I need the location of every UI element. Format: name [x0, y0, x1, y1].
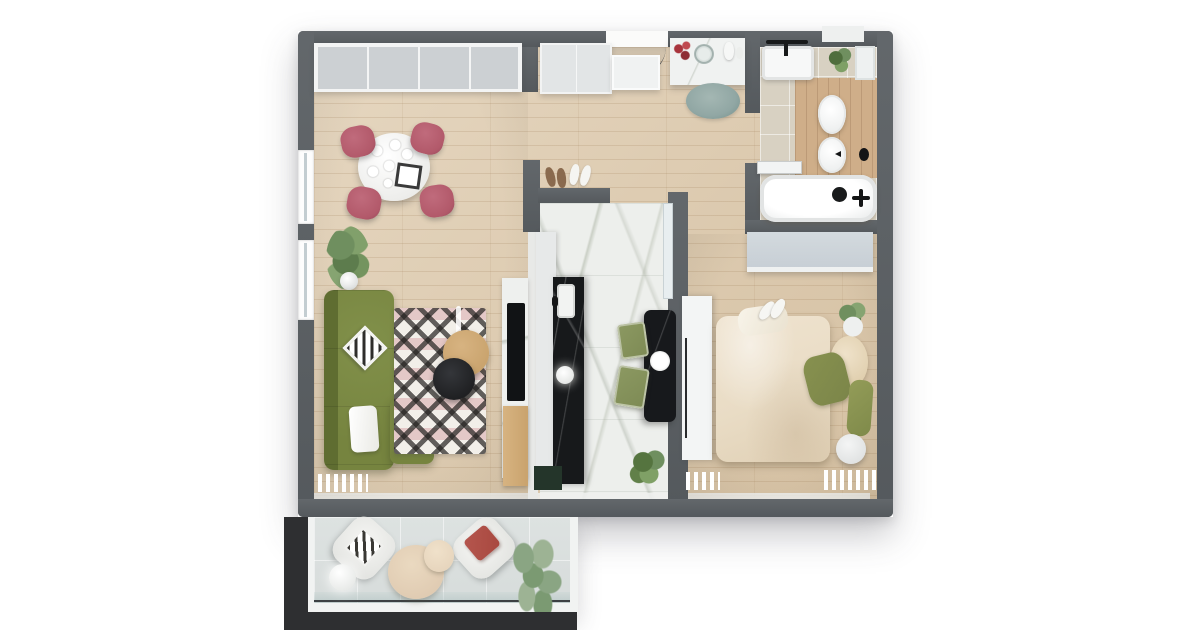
vanity-sink	[762, 46, 814, 80]
window	[298, 240, 314, 320]
bidet-spout	[835, 151, 841, 157]
kitchen-chair	[617, 321, 650, 360]
potted-plant	[826, 46, 854, 76]
floor-lamp	[340, 272, 358, 290]
floor-plan-canvas	[0, 0, 1200, 630]
wall-vent-cap	[822, 26, 864, 42]
sphere-lamp	[329, 564, 356, 591]
cabinet-divider	[576, 45, 577, 92]
rug-fringe	[824, 470, 876, 490]
slippers	[762, 298, 788, 322]
rug-fringe	[318, 474, 368, 492]
dining-table-tray	[394, 162, 422, 189]
lower-level-shadow	[284, 612, 577, 630]
wall-east	[877, 31, 893, 517]
wardrobe	[747, 232, 873, 272]
round-teal-rug	[686, 83, 740, 119]
wardrobe-edge	[747, 267, 873, 272]
lumbar-pillow	[846, 379, 874, 437]
pendant-light	[556, 366, 574, 384]
plate	[650, 351, 670, 371]
wall-south	[298, 499, 893, 517]
vase	[736, 47, 743, 59]
window-glass	[304, 153, 307, 221]
closet-doors	[318, 47, 518, 89]
wall-column	[520, 47, 538, 92]
kitchen-chair	[613, 365, 650, 409]
wall-kitchen-north	[538, 188, 610, 203]
bathtub-drain	[832, 187, 847, 202]
balcony-table	[424, 540, 454, 572]
green-base-cabinet	[534, 466, 562, 490]
window	[298, 150, 314, 224]
kitchen-sink	[557, 284, 575, 318]
potted-plant	[835, 300, 871, 338]
tv	[507, 303, 525, 401]
tall-closet	[682, 296, 712, 460]
rug-fringe	[686, 472, 720, 490]
slipper	[544, 166, 558, 188]
tray-table	[433, 358, 475, 400]
closet-handle	[685, 338, 687, 438]
round-tray	[694, 44, 714, 64]
entrance-door-opening	[606, 31, 668, 47]
slipper	[578, 164, 592, 187]
media-console	[503, 406, 528, 486]
kitchen-glass-door	[663, 203, 673, 299]
slippers	[570, 164, 592, 188]
vase	[724, 42, 734, 60]
shoe-cabinet	[612, 55, 660, 90]
red-flowers	[672, 40, 694, 62]
bedside-table	[836, 434, 866, 464]
storage-shelf	[855, 46, 875, 80]
tall-cabinet	[540, 43, 612, 94]
slipper	[568, 163, 581, 185]
trailing-plant	[498, 534, 562, 614]
bathroom-door-leaf	[757, 161, 802, 174]
bidet	[818, 137, 846, 173]
toilet-brush	[859, 148, 869, 161]
slipper	[556, 168, 567, 189]
sofa-blanket	[348, 405, 379, 453]
kitchen-faucet	[552, 296, 558, 307]
potted-plant	[629, 448, 669, 488]
closet-row	[314, 43, 522, 92]
vanity-faucet-stem	[784, 44, 788, 56]
wall-bathroom-west-upper	[745, 31, 760, 113]
window-glass	[304, 243, 307, 317]
bathtub-tap	[852, 189, 870, 207]
slippers	[546, 167, 570, 189]
